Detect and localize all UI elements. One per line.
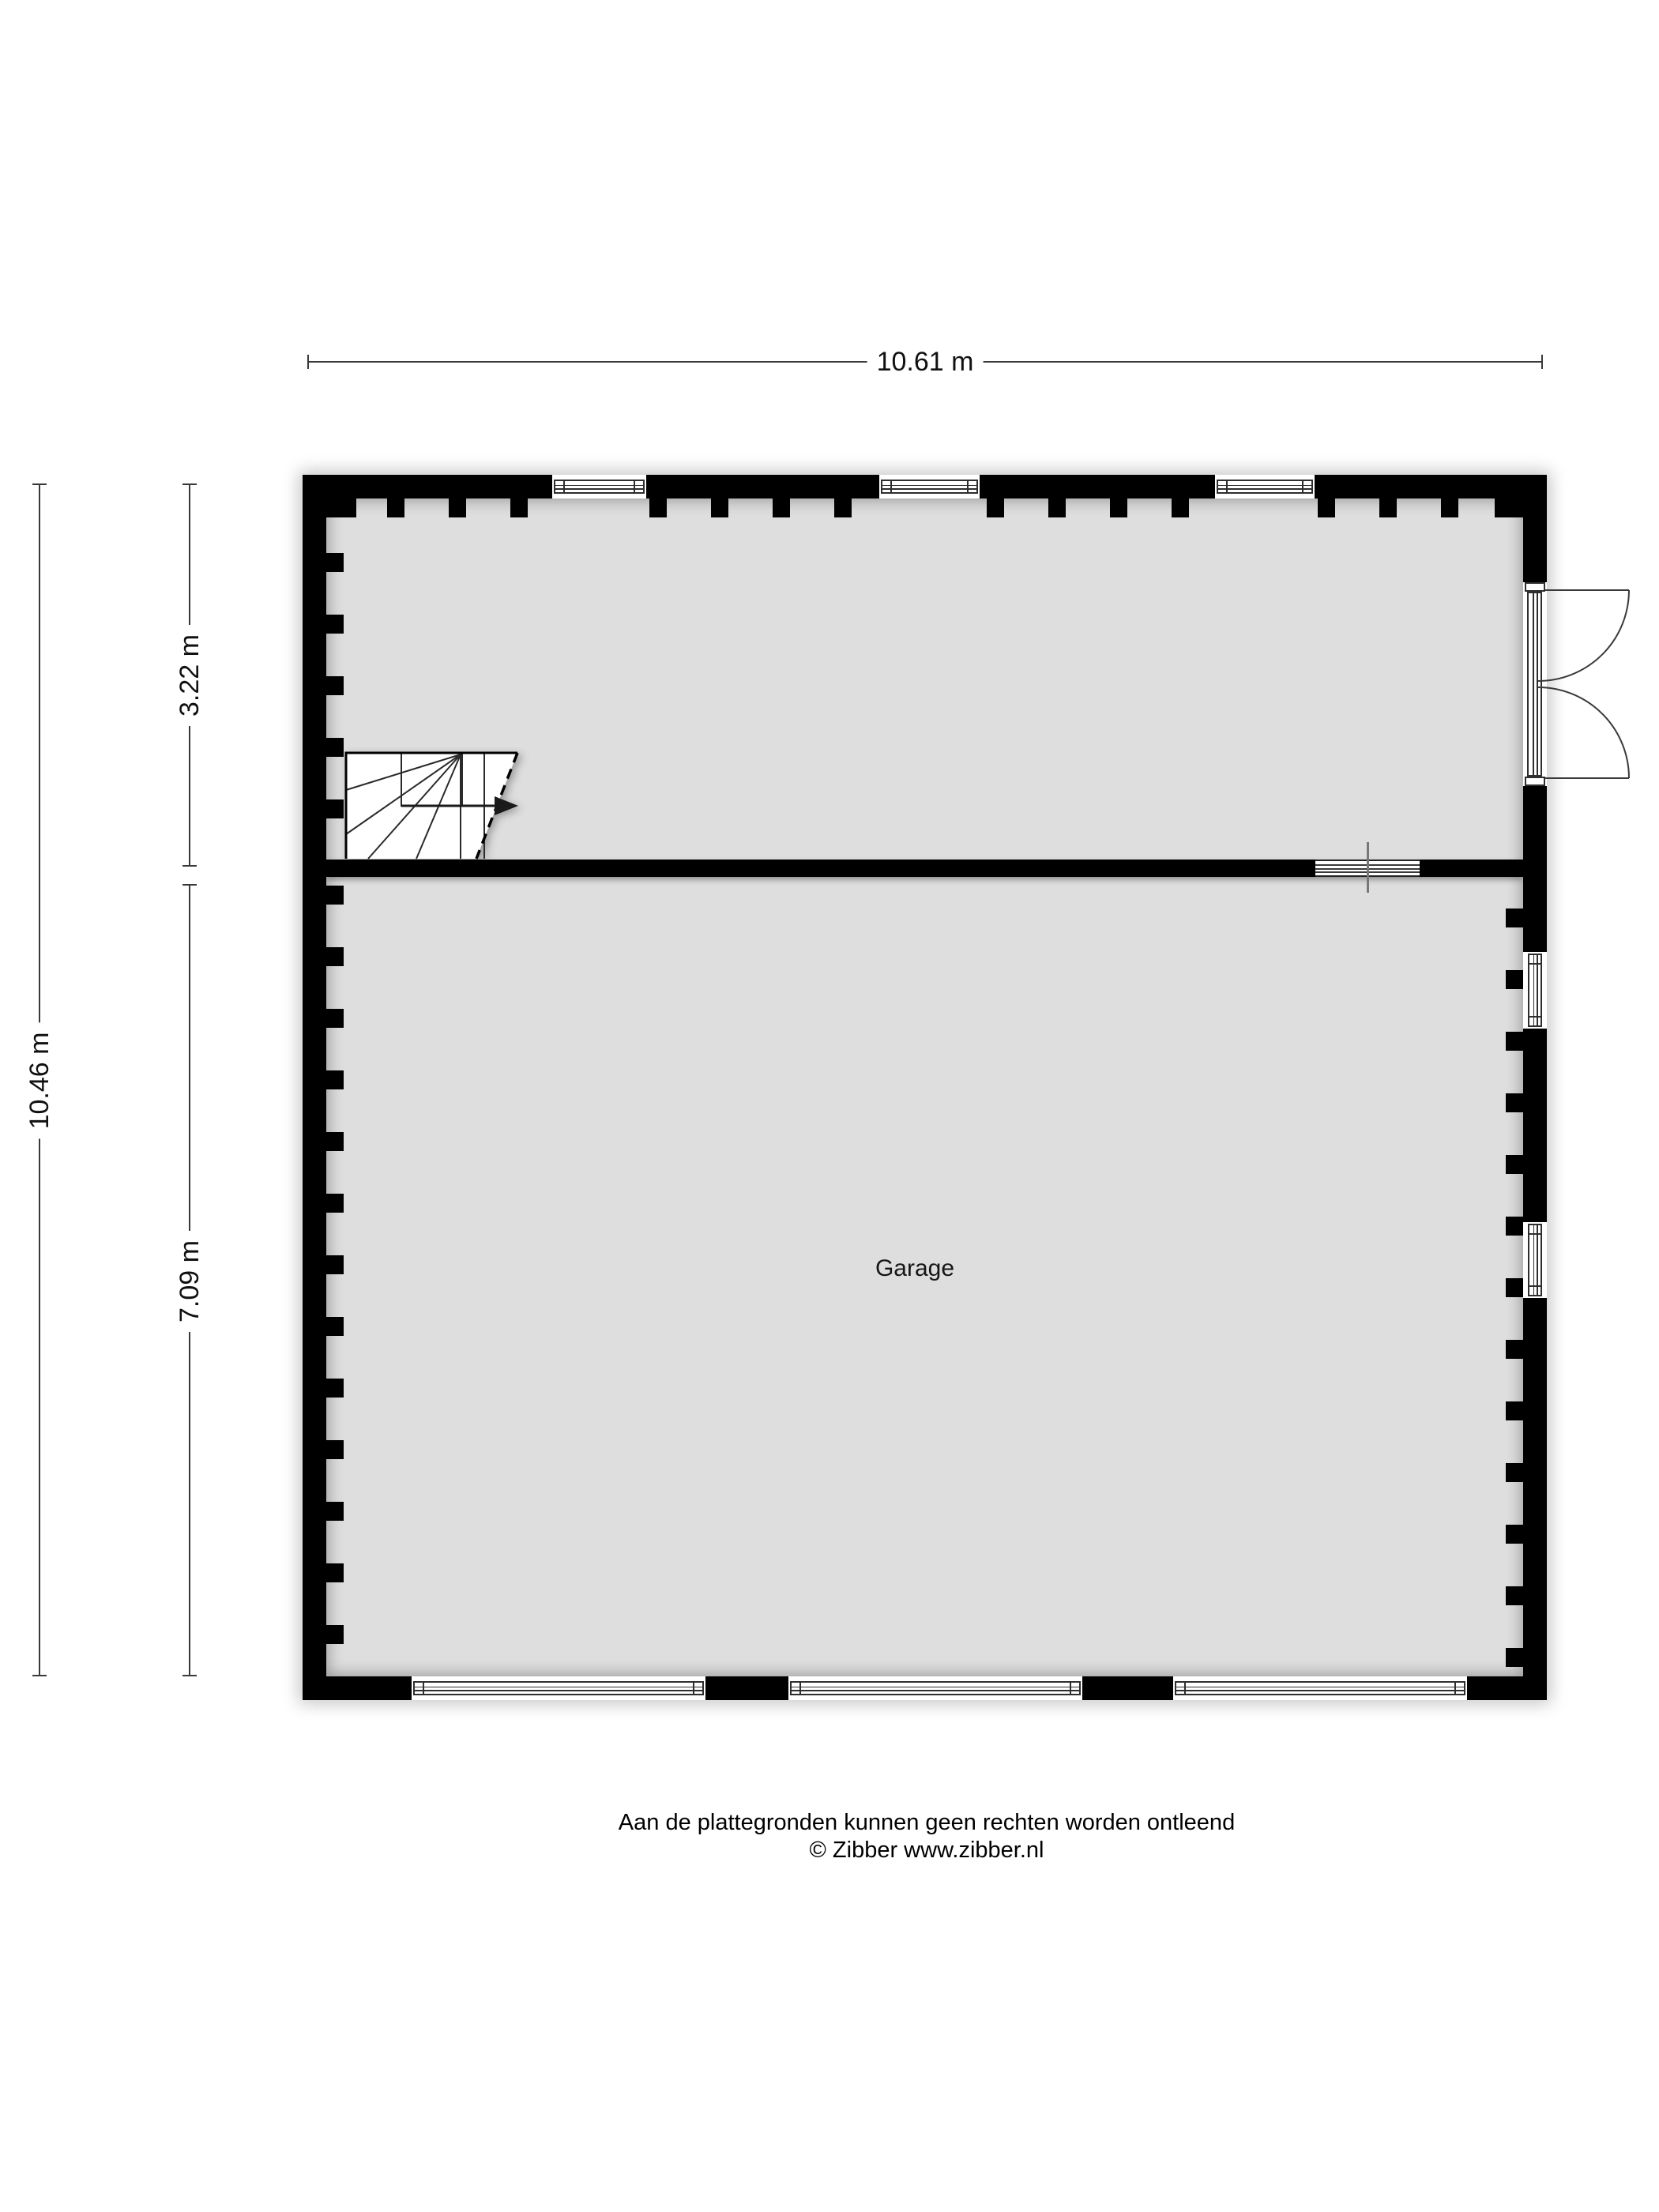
dimension-tick (1541, 355, 1543, 369)
wall-tooth (1506, 1648, 1523, 1667)
wall-tooth (1441, 498, 1458, 517)
wall-tooth (1506, 1278, 1523, 1297)
footer-disclaimer: Aan de plattegronden kunnen geen rechten… (619, 1809, 1235, 1864)
right-window-1-icon (1523, 952, 1547, 1029)
top-window-2-icon (879, 475, 980, 498)
dimension-tick (182, 483, 197, 485)
dimension-tick (32, 1675, 47, 1676)
wall-tooth (773, 498, 790, 517)
wall-tooth (326, 1009, 344, 1028)
wall-tooth (326, 1070, 344, 1089)
wall-tooth (326, 947, 344, 966)
wall-tooth (1506, 1525, 1523, 1544)
pass-through-marker (1367, 842, 1369, 893)
floor-area (326, 498, 1523, 1676)
wall-tooth (1506, 970, 1523, 989)
wall-tooth (510, 498, 528, 517)
wall-tooth (649, 498, 667, 517)
dimension-tick (307, 355, 309, 369)
wall-tooth (1110, 498, 1127, 517)
wall-tooth (1506, 1340, 1523, 1359)
wall-tooth (387, 498, 404, 517)
wall-tooth (1506, 1155, 1523, 1174)
wall-tooth (711, 498, 728, 517)
footer-line-1: Aan de plattegronden kunnen geen rechten… (619, 1809, 1235, 1837)
dimension-tick (182, 884, 197, 886)
wall-tooth (326, 886, 344, 905)
wall-tooth (834, 498, 852, 517)
wall-tooth (1506, 1032, 1523, 1051)
wall-tooth (1172, 498, 1189, 517)
wall-tooth (326, 553, 344, 572)
double-door-swing-icon (1540, 577, 1659, 790)
wall-tooth (1506, 908, 1523, 927)
wall-tooth (1506, 1586, 1523, 1605)
wall-tooth (1048, 498, 1066, 517)
dimension-label-upper-room: 3.22 m (173, 625, 206, 726)
bottom-window-1-icon (412, 1676, 705, 1700)
wall-tooth (1506, 1217, 1523, 1236)
wall-tooth (326, 676, 344, 695)
wall-tooth (1379, 498, 1397, 517)
wall-tooth (1506, 1093, 1523, 1112)
wall-tooth (1495, 498, 1523, 517)
dimension-label-garage: 7.09 m (173, 1231, 206, 1332)
wall-tooth (1318, 498, 1335, 517)
wall-tooth (326, 1625, 344, 1644)
wall-tooth (326, 1132, 344, 1151)
dimension-tick (182, 865, 197, 867)
wall-tooth (1506, 1463, 1523, 1482)
footer-line-2: © Zibber www.zibber.nl (619, 1837, 1235, 1864)
room-label-garage: Garage (875, 1255, 954, 1282)
top-window-1-icon (552, 475, 646, 498)
stair-direction-arrow (495, 796, 518, 815)
wall-tooth (987, 498, 1004, 517)
wall-tooth (326, 1194, 344, 1213)
wall-tooth (1506, 1401, 1523, 1420)
floorplan-page: 10.61 m 10.46 m 3.22 m 7.09 m (0, 0, 1659, 2212)
wall-tooth (326, 1563, 344, 1582)
wall-tooth (449, 498, 466, 517)
wall-tooth (326, 498, 356, 517)
wall-tooth (326, 1317, 344, 1336)
wall-tooth (326, 1502, 344, 1521)
dimension-label-width: 10.61 m (867, 345, 984, 378)
right-window-2-icon (1523, 1222, 1547, 1298)
wall-tooth (326, 1440, 344, 1459)
bottom-window-3-icon (1173, 1676, 1467, 1700)
wall-tooth (326, 1255, 344, 1274)
top-window-3-icon (1215, 475, 1315, 498)
wall-left (303, 475, 326, 1700)
staircase-icon (340, 747, 529, 865)
bottom-window-2-icon (788, 1676, 1082, 1700)
wall-tooth (326, 615, 344, 634)
dimension-tick (182, 1675, 197, 1676)
wall-tooth (326, 1379, 344, 1398)
dimension-tick (32, 483, 47, 485)
dimension-label-height-total: 10.46 m (23, 1023, 56, 1139)
